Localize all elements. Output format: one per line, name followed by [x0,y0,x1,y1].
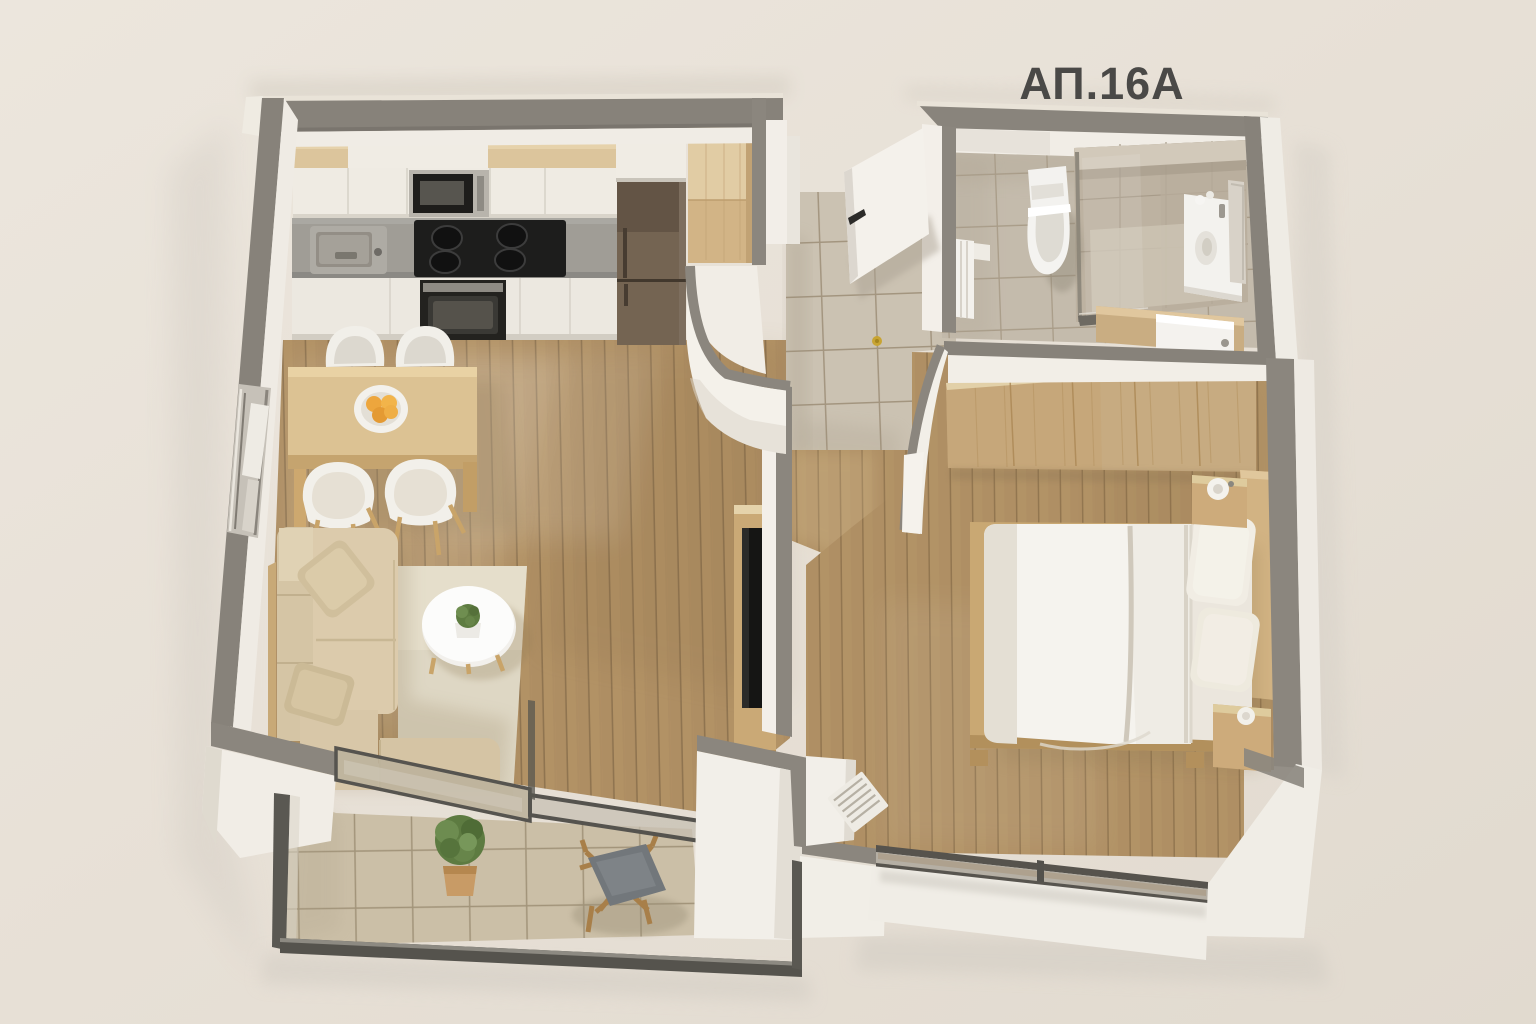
svg-text:АП.16А: АП.16А [1019,58,1184,109]
